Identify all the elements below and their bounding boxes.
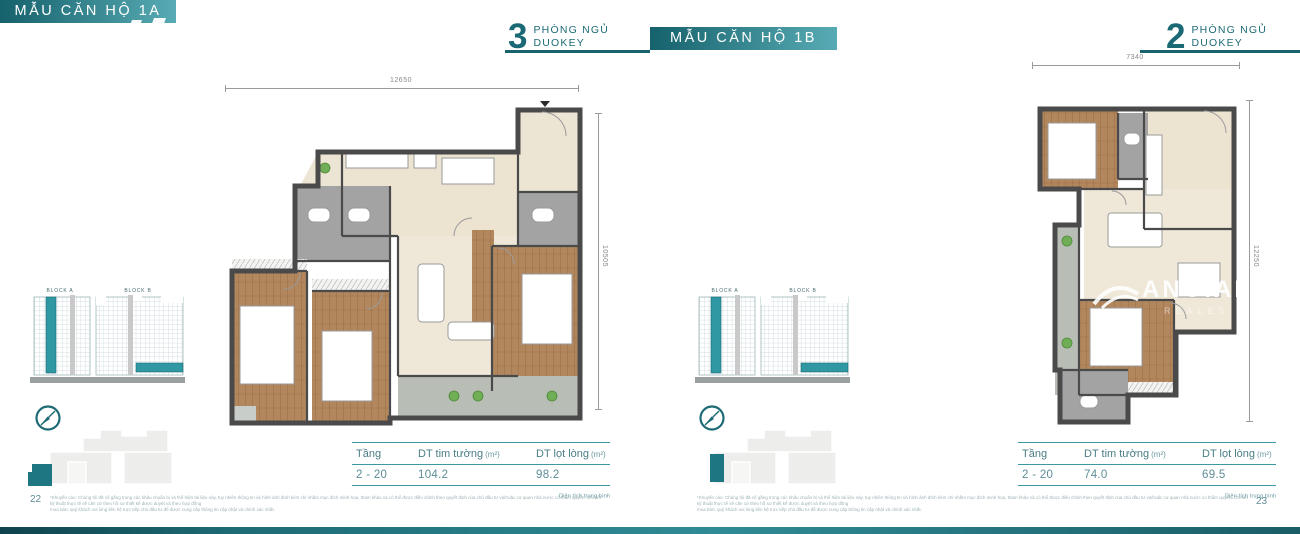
table-header-row: Tầng DT tim tường(m²) DT lọt lòng(m²) — [352, 443, 610, 464]
right-room-badge: 2 PHÒNG NGỦ DUOKEY — [1166, 21, 1267, 52]
badge-room-label: PHÒNG NGỦ — [533, 24, 609, 37]
dimension-line — [1032, 62, 1240, 69]
page-number-right: 23 — [1256, 496, 1267, 507]
page-number-left: 22 — [30, 494, 41, 505]
brand-logo-arcs — [1090, 274, 1142, 310]
col-gross: DT tim tường — [418, 448, 483, 460]
right-badge-underline — [1140, 50, 1300, 53]
area-table-1b: Tầng DT tim tường(m²) DT lọt lòng(m²) 2 … — [1018, 442, 1276, 497]
watermark-sub-text: REALES — [1164, 306, 1250, 316]
col-floor: Tầng — [356, 448, 418, 460]
dimension-line — [225, 85, 579, 92]
block-a-label: BLOCK A — [47, 288, 74, 294]
floorplan-1b — [1028, 95, 1242, 427]
badge-key-label: DUOKEY — [1191, 37, 1267, 50]
disclaimer-line1: *Khuyến cáo: Chúng tôi đã cố gắng trong … — [50, 495, 601, 506]
table-border — [1018, 485, 1276, 486]
col-net-unit: (m²) — [1257, 450, 1272, 459]
right-plan-height-dimension: 12250 — [1252, 245, 1259, 267]
siteplan-key — [692, 422, 852, 490]
badge-key-label: DUOKEY — [533, 37, 609, 50]
floor-range: 2 - 20 — [1022, 469, 1084, 481]
logo-watermark — [88, 14, 198, 66]
center-room-badge: 3 PHÒNG NGỦ DUOKEY — [508, 21, 609, 52]
net-area: 98.2 — [536, 469, 610, 481]
block-b-label: BLOCK B — [124, 288, 151, 294]
unit-1b-highlight — [801, 363, 848, 372]
col-net: DT lọt lòng — [536, 448, 589, 460]
col-floor: Tầng — [1022, 448, 1084, 460]
col-gross-unit: (m²) — [485, 450, 500, 459]
area-table-1a: Tầng DT tim tường(m²) DT lọt lòng(m²) 2 … — [352, 442, 610, 497]
gross-area: 74.0 — [1084, 469, 1202, 481]
unit-location-highlight — [28, 464, 52, 486]
bedroom-count: 3 — [508, 21, 527, 52]
col-gross-unit: (m²) — [1151, 450, 1166, 459]
unit-1a-highlight — [46, 297, 56, 373]
col-net: DT lọt lòng — [1202, 448, 1255, 460]
unit-location-highlight — [710, 454, 724, 482]
right-plan-width-dimension: 7340 — [1032, 54, 1238, 61]
footer-accent-bar — [0, 527, 1300, 534]
table-value-row: 2 - 20 104.2 98.2 — [352, 465, 610, 486]
siteplan-key — [28, 422, 188, 490]
center-badge-underline — [505, 50, 650, 53]
table-value-row: 2 - 20 74.0 69.5 — [1018, 465, 1276, 486]
col-net-unit: (m²) — [591, 450, 606, 459]
disclaimer-line2: mua bán; quý khách vui lòng liên hệ trực… — [50, 507, 275, 512]
unit-1a-highlight — [711, 297, 721, 373]
disclaimer-line1: *Khuyến cáo: Chúng tôi đã cố gắng trong … — [697, 495, 1248, 506]
right-unit-title-box: MẪU CĂN HỘ 1B — [650, 27, 837, 50]
unit-1b-highlight — [136, 363, 183, 372]
block-location-diagram: BLOCK A BLOCK B — [30, 283, 185, 386]
floor-range: 2 - 20 — [356, 469, 418, 481]
gross-area: 104.2 — [418, 469, 536, 481]
block-location-diagram: BLOCK A BLOCK B — [695, 283, 850, 386]
badge-room-label: PHÒNG NGỦ — [1191, 24, 1267, 37]
left-plan-height-dimension: 10505 — [601, 245, 608, 267]
brochure-spread: MẪU CĂN HỘ 1A 3 PHÒNG NGỦ DUOKEY MẪU CĂN… — [0, 0, 1300, 534]
block-b-label: BLOCK B — [789, 288, 816, 294]
col-gross: DT tim tường — [1084, 448, 1149, 460]
net-area: 69.5 — [1202, 469, 1276, 481]
foyer — [518, 110, 580, 192]
floorplan-1a — [222, 96, 584, 431]
disclaimer-line2: mua bán; quý khách vui lòng liên hệ trực… — [697, 507, 922, 512]
brand-watermark: ANGIALA REALES — [1090, 276, 1250, 316]
bedroom-count: 2 — [1166, 21, 1185, 52]
left-plan-width-dimension: 12650 — [225, 77, 577, 84]
block-a-label: BLOCK A — [712, 288, 739, 294]
table-border — [352, 485, 610, 486]
watermark-brand-text: ANGIALA — [1142, 276, 1250, 304]
table-header-row: Tầng DT tim tường(m²) DT lọt lòng(m²) — [1018, 443, 1276, 464]
